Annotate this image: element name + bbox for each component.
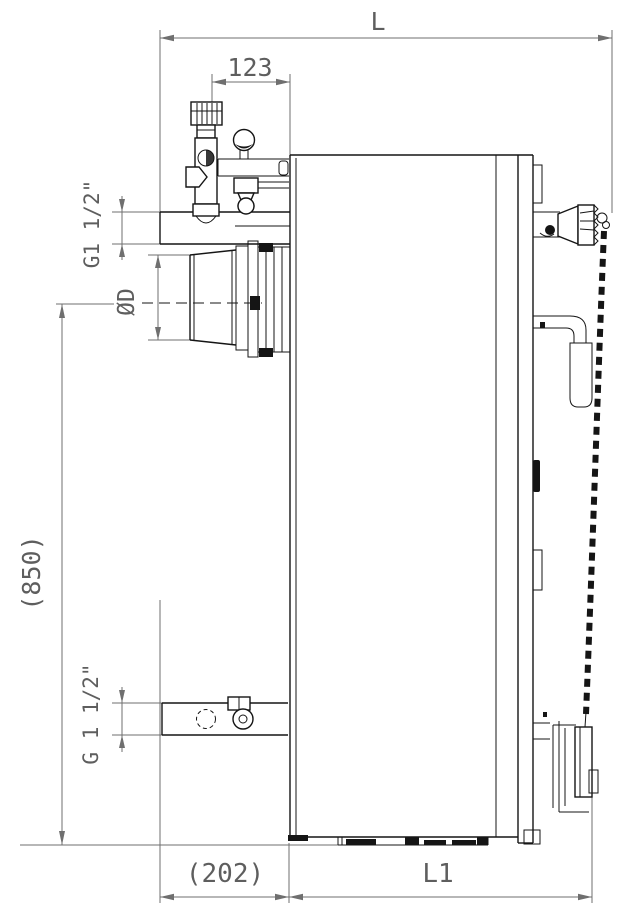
dimension-front-projection: (202) (160, 600, 289, 903)
dimension-annotations: L 123 G1 1/2" ØD (17, 7, 612, 903)
product-drawing (142, 102, 610, 845)
drawing-canvas: L 123 G1 1/2" ØD (0, 0, 642, 909)
dimension-body-depth: L1 (289, 790, 592, 903)
top-connection-pipe (160, 159, 290, 244)
boiler-body (290, 155, 533, 843)
top-drain-valve (558, 205, 610, 245)
dimension-top-thread-label: G1 1/2" (80, 180, 104, 269)
knob-valve (234, 130, 259, 215)
safety-valve (186, 102, 222, 223)
dimension-bottom-thread: G 1 1/2" (79, 663, 164, 764)
chain (585, 231, 604, 727)
dimension-valve-offset-label: 123 (227, 53, 272, 82)
dimension-flue-diameter-label: ØD (114, 288, 140, 316)
dimension-bottom-thread-label: G 1 1/2" (79, 663, 103, 764)
dimension-body-depth-label: L1 (422, 859, 453, 889)
dimension-overall-depth: L (160, 7, 612, 213)
bottom-connection-pipe (162, 697, 288, 735)
dimension-overall-height-label: (850) (17, 535, 46, 610)
dimension-flue-diameter: ØD (114, 255, 192, 340)
technical-drawing: L 123 G1 1/2" ØD (0, 0, 642, 909)
dimension-overall-depth-label: L (370, 7, 385, 36)
dimension-front-projection-label: (202) (186, 859, 264, 889)
bottom-valve-handle (533, 712, 598, 812)
